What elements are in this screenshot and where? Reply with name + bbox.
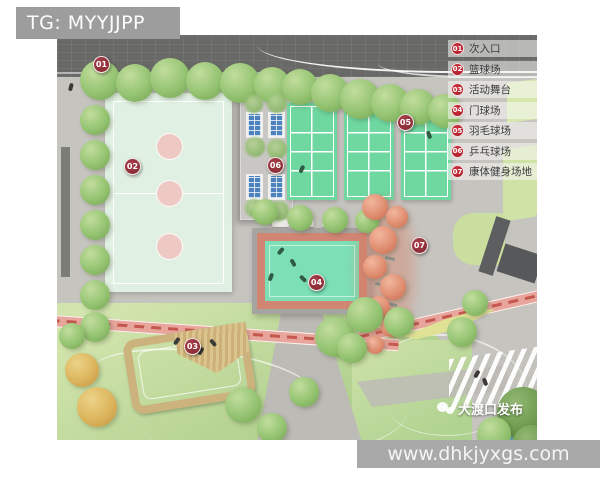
marker-02: 02 xyxy=(124,158,141,175)
tree xyxy=(447,317,477,347)
tree xyxy=(384,307,414,337)
west-wall xyxy=(61,147,70,277)
autumn-tree xyxy=(386,206,408,228)
legend-item-01: 01 次入口 xyxy=(448,40,537,57)
tree xyxy=(80,105,110,135)
tree xyxy=(287,205,313,231)
tree xyxy=(462,290,488,316)
legend-badge: 07 xyxy=(451,165,464,178)
legend-item-02: 02 篮球场 xyxy=(448,61,537,78)
website-watermark: www.dhkjyxgs.com xyxy=(357,440,600,468)
legend-label: 康体健身场地 xyxy=(469,164,532,179)
tree xyxy=(80,140,110,170)
autumn-tree xyxy=(65,353,99,387)
legend-badge: 04 xyxy=(451,104,464,117)
solar-panel xyxy=(268,174,285,200)
autumn-tree xyxy=(362,194,388,220)
autumn-tree xyxy=(363,255,387,279)
legend-item-04: 04 门球场 xyxy=(448,102,537,119)
legend-label: 活动舞台 xyxy=(469,82,511,97)
tree xyxy=(116,64,154,102)
tree xyxy=(252,199,278,225)
tree xyxy=(80,210,110,240)
legend-label: 篮球场 xyxy=(469,62,501,77)
legend-label: 次入口 xyxy=(469,41,501,56)
tree xyxy=(80,245,110,275)
site-plan: 01 02 03 04 05 06 07 01 次入口 02 篮球场 03 活动… xyxy=(57,35,537,440)
legend-label: 乒乓球场 xyxy=(469,144,511,159)
tree xyxy=(347,297,383,333)
tree xyxy=(225,387,261,423)
tree xyxy=(80,175,110,205)
tree xyxy=(59,323,85,349)
pavilion-building xyxy=(496,244,537,284)
legend-badge: 06 xyxy=(451,145,464,158)
legend-label: 羽毛球场 xyxy=(469,123,511,138)
legend-badge: 03 xyxy=(451,83,464,96)
solar-panel xyxy=(246,112,263,138)
court-center-circle xyxy=(156,180,183,207)
tree xyxy=(267,139,287,159)
tree xyxy=(322,207,348,233)
basketball-court xyxy=(105,93,232,292)
marker-01: 01 xyxy=(93,56,110,73)
page: { "header": { "tg_watermark": "TG: MYYJJ… xyxy=(0,0,600,480)
tree xyxy=(245,137,265,157)
tree xyxy=(337,333,367,363)
tree xyxy=(257,413,287,440)
solar-panel xyxy=(268,112,285,138)
legend-item-03: 03 活动舞台 xyxy=(448,81,537,98)
solar-panel xyxy=(246,174,263,200)
legend-badge: 05 xyxy=(451,124,464,137)
tree xyxy=(186,62,224,100)
tree xyxy=(289,377,319,407)
marker-04: 04 xyxy=(308,274,325,291)
court-key-circle xyxy=(156,233,183,260)
legend-item-07: 07 康体健身场地 xyxy=(448,163,537,180)
tree xyxy=(80,280,110,310)
legend: 01 次入口 02 篮球场 03 活动舞台 04 门球场 05 羽毛球场 06 … xyxy=(448,40,537,180)
autumn-tree xyxy=(380,274,406,300)
tree xyxy=(267,93,287,113)
autumn-tree xyxy=(77,387,117,427)
legend-item-05: 05 羽毛球场 xyxy=(448,122,537,139)
publisher-name: 大渡口发布 xyxy=(458,399,523,418)
legend-item-06: 06 乒乓球场 xyxy=(448,143,537,160)
legend-label: 门球场 xyxy=(469,103,501,118)
marker-07: 07 xyxy=(411,237,428,254)
autumn-tree xyxy=(369,226,397,254)
court-key-circle xyxy=(156,133,183,160)
publisher-watermark: 大渡口发布 xyxy=(437,399,523,418)
marker-06: 06 xyxy=(267,157,284,174)
legend-badge: 01 xyxy=(451,42,464,55)
legend-badge: 02 xyxy=(451,63,464,76)
tg-watermark: TG: MYYJJPP xyxy=(16,7,180,39)
marker-05: 05 xyxy=(397,114,414,131)
person-figure xyxy=(68,83,73,91)
autumn-tree xyxy=(366,336,384,354)
tree xyxy=(245,95,263,113)
marker-03: 03 xyxy=(184,338,201,355)
tree xyxy=(150,58,190,98)
badminton-court-1 xyxy=(287,103,337,200)
wechat-icon xyxy=(437,401,455,416)
